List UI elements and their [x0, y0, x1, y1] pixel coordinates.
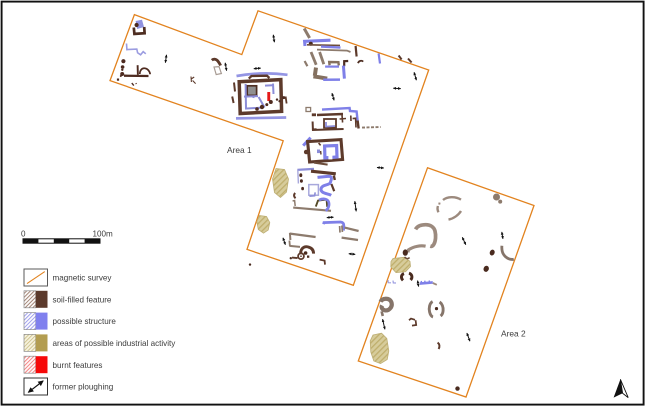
svg-text:100m: 100m: [93, 230, 114, 239]
svg-text:Area 1: Area 1: [227, 145, 252, 155]
svg-text:Area 2: Area 2: [501, 329, 526, 339]
svg-text:magnetic survey: magnetic survey: [53, 274, 113, 283]
svg-text:soil-filled feature: soil-filled feature: [53, 295, 112, 304]
svg-text:former ploughing: former ploughing: [53, 383, 114, 392]
svg-text:burnt features: burnt features: [53, 361, 103, 370]
svg-text:areas of possible industrial a: areas of possible industrial activity: [53, 339, 177, 348]
svg-text:0: 0: [21, 230, 26, 239]
svg-text:possible structure: possible structure: [53, 317, 117, 326]
